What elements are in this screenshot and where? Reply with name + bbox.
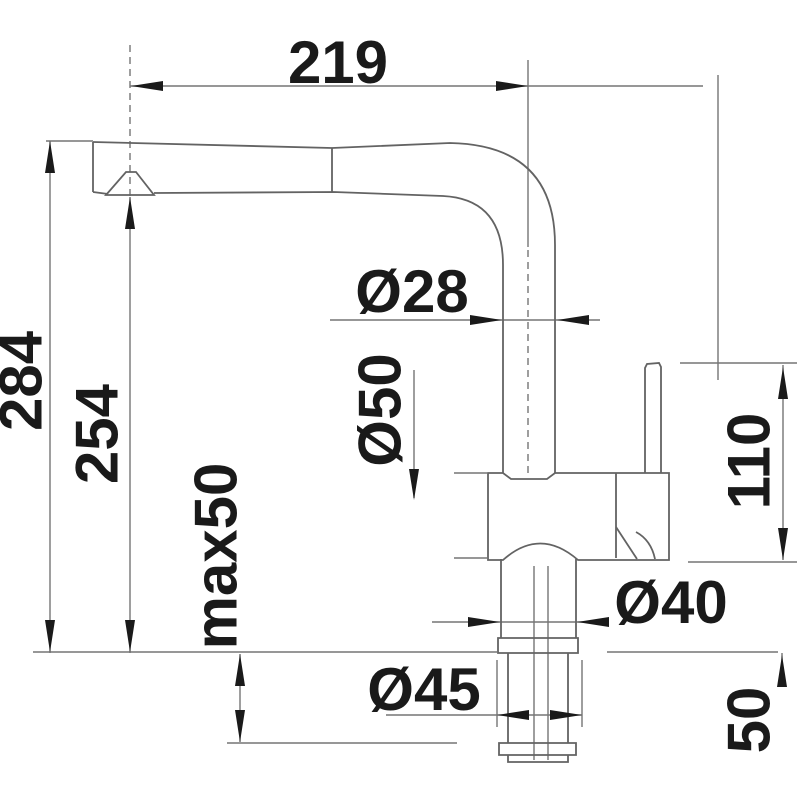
label-tube-diameter: Ø28 bbox=[355, 258, 468, 325]
label-hole-diameter: Ø45 bbox=[367, 656, 480, 723]
label-lever-height: 110 bbox=[716, 413, 783, 510]
arrowhead-110-top bbox=[778, 367, 788, 399]
label-max-counter-thickness: max50 bbox=[183, 463, 250, 650]
spout-end-bottom bbox=[93, 192, 108, 194]
label-under-counter-depth: 50 bbox=[716, 687, 783, 754]
arrowhead-d40-left bbox=[468, 617, 500, 627]
label-spout-reach: 219 bbox=[288, 29, 388, 96]
arrowhead-d50-leader bbox=[409, 469, 419, 500]
technical-drawing-page: 219 284 254 max50 Ø28 Ø50 110 Ø40 Ø45 50 bbox=[0, 0, 800, 800]
arrowhead-50-top bbox=[777, 655, 787, 687]
arrowhead-219-right bbox=[496, 81, 528, 91]
arrowhead-max50-bottom bbox=[235, 710, 245, 742]
bottom-flange bbox=[499, 743, 576, 755]
label-outlet-height: 254 bbox=[64, 383, 131, 484]
arrowhead-219-left bbox=[131, 81, 163, 91]
arrowhead-d45-right bbox=[550, 710, 582, 720]
faucet-technical-drawing: 219 284 254 max50 Ø28 Ø50 110 Ø40 Ø45 50 bbox=[0, 0, 800, 800]
body-outline bbox=[488, 473, 669, 560]
label-neck-diameter: Ø40 bbox=[614, 569, 727, 636]
arrowhead-d28-left bbox=[470, 315, 502, 325]
arrowhead-d28-right bbox=[557, 315, 589, 325]
arrowhead-284-bottom bbox=[45, 620, 55, 652]
arrowhead-110-bottom bbox=[778, 528, 788, 560]
label-body-diameter: Ø50 bbox=[347, 353, 414, 466]
arrowheads bbox=[45, 81, 788, 742]
arrowhead-d45-left bbox=[497, 710, 529, 720]
arrowhead-254-top bbox=[125, 197, 135, 229]
lever-detail-arc bbox=[636, 532, 655, 559]
shank-stub bbox=[508, 755, 568, 762]
label-total-height: 284 bbox=[0, 330, 55, 431]
spout-bottom-edge bbox=[154, 192, 503, 473]
lever-detail-line bbox=[616, 527, 637, 559]
lever-rod bbox=[645, 363, 661, 473]
dimension-lines bbox=[33, 60, 797, 743]
arrowhead-284-top bbox=[45, 141, 55, 173]
dimension-labels: 219 284 254 max50 Ø28 Ø50 110 Ø40 Ø45 50 bbox=[0, 29, 783, 753]
arrowhead-max50-top bbox=[235, 654, 245, 686]
arrowhead-d40-right bbox=[577, 617, 609, 627]
arrowhead-254-bottom bbox=[125, 620, 135, 652]
mounting-flange bbox=[498, 638, 578, 653]
